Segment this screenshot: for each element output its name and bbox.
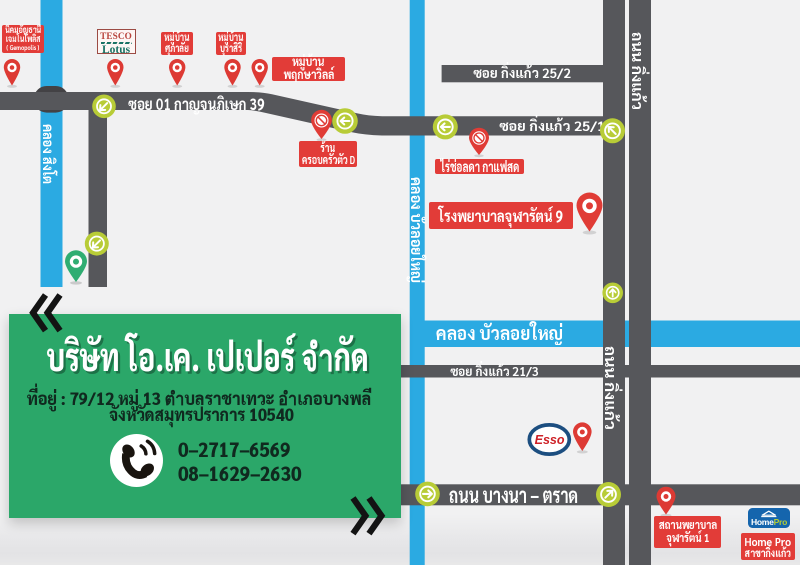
svg-text:HomePro: HomePro <box>751 517 787 527</box>
svg-text:Esso: Esso <box>535 433 565 447</box>
